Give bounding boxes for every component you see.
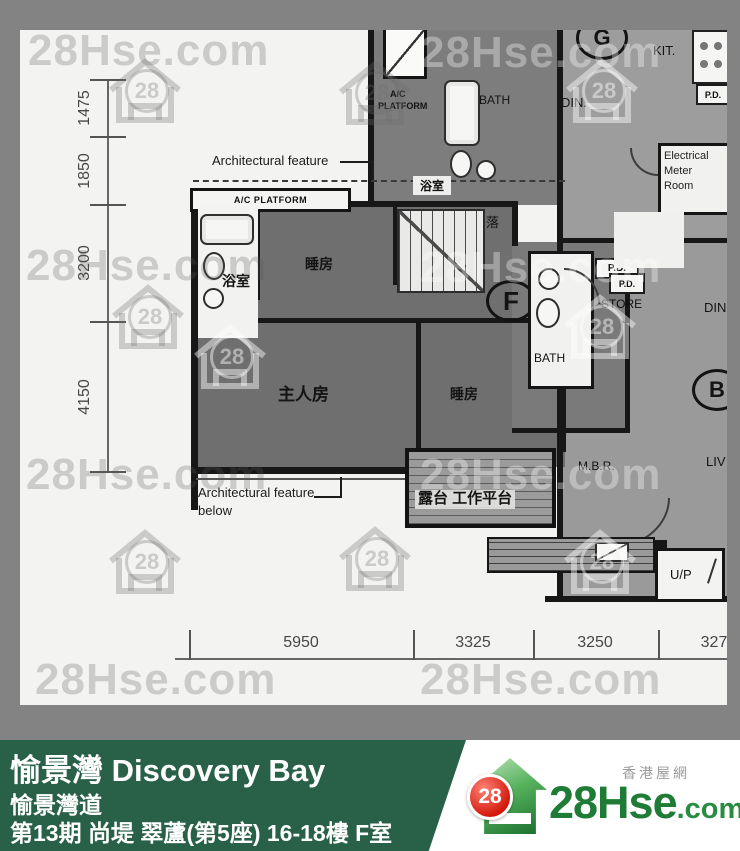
logo-badge: 28	[467, 774, 513, 820]
watermark-badge: 28	[125, 540, 169, 584]
living-label: LIV	[706, 455, 726, 469]
logo-house-icon: 28	[473, 758, 547, 834]
watermark-badge: 28	[355, 537, 399, 581]
watermark-logo-8: 28	[335, 522, 415, 596]
toilet-g	[450, 150, 472, 178]
watermark-logo-3: 28	[562, 54, 642, 128]
wall-store-wing-bottom	[512, 428, 630, 433]
arch-below-connector-v	[340, 477, 342, 498]
dim-tick-v3	[90, 204, 126, 206]
arch-below-connector-h	[314, 496, 342, 498]
watermark-logo-4: 28	[108, 280, 188, 354]
watermark-text-7: 28Hse.com	[35, 655, 276, 705]
watermark-logo-7: 28	[105, 525, 185, 599]
watermark-text-5: 28Hse.com	[26, 450, 267, 500]
watermark-text-4: 28Hse.com	[420, 243, 661, 293]
emr-label-3: Room	[664, 180, 693, 192]
emr-label-2: Meter	[664, 165, 692, 177]
watermark-logo-6: 28	[560, 290, 640, 364]
dining-right-label: DIN	[704, 301, 726, 315]
logo-name: 28Hse	[549, 780, 677, 825]
dim-label-327: 327	[692, 634, 727, 652]
watermark-badge: 28	[580, 540, 624, 584]
arch-feature-dashed-line	[193, 180, 565, 182]
arch-feature-connector-v	[372, 161, 374, 180]
dim-tick-h2	[413, 630, 415, 660]
pd-upper-label: P.D.	[705, 90, 721, 100]
up-label: U/P	[670, 568, 692, 582]
bath-g-cn-chip: 浴室	[413, 176, 451, 195]
watermark-logo-1: 28	[105, 54, 185, 128]
watermark-logo-9: 28	[560, 525, 640, 599]
watermark-logo-5: 28	[190, 320, 270, 394]
watermark-badge: 28	[210, 335, 254, 379]
bath-g-cn-label: 浴室	[420, 177, 444, 194]
wall-master-bedroom2	[416, 320, 421, 467]
toilet-mid	[536, 298, 560, 328]
sink-f	[203, 288, 224, 309]
dim-label-1475: 1475	[76, 86, 92, 130]
watermark-text-6: 28Hse.com	[420, 450, 661, 500]
bathtub-g	[444, 80, 480, 146]
dim-label-4150: 4150	[76, 375, 92, 419]
dim-label-5950: 5950	[279, 634, 323, 652]
screenshot-stage: Architectural feature A/C PLATFORM 浴室 睡房…	[0, 0, 740, 851]
banner-title: 愉景灣 Discovery Bay	[10, 745, 325, 790]
unit-b-letter: B	[709, 377, 725, 403]
sink-g	[476, 160, 496, 180]
wall-f-right-upper	[512, 201, 518, 246]
dim-label-3325: 3325	[451, 634, 495, 652]
master-bedroom-label: 主人房	[278, 386, 329, 405]
bedroom-lower-label: 睡房	[450, 387, 478, 402]
watermark-badge: 28	[125, 69, 169, 113]
arch-feature-label: Architectural feature	[212, 154, 328, 168]
watermark-badge: 28	[580, 305, 624, 349]
watermark-badge: 28	[128, 295, 172, 339]
stove	[692, 30, 727, 84]
watermark-text-8: 28Hse.com	[420, 655, 661, 705]
dim-label-3250: 3250	[573, 634, 617, 652]
arch-feature-connector-h	[340, 161, 374, 163]
logo-wordmark: 28Hse.com	[549, 780, 740, 825]
ac-platform-label: A/C PLATFORM	[234, 195, 307, 205]
watermark-badge: 28	[355, 71, 399, 115]
watermark-logo-2: 28	[335, 56, 415, 130]
banner-detail: 第13期 尚堤 翠蘆(第5座) 16-18樓 F室	[10, 814, 392, 848]
dim-label-1850: 1850	[76, 149, 92, 193]
arch-feature-below-label-2: below	[198, 504, 232, 518]
bath-g-label: BATH	[479, 94, 510, 107]
logo-tld: .com	[677, 795, 740, 824]
watermark-badge: 28	[582, 69, 626, 113]
stairs-down-label: 落	[486, 216, 499, 230]
floorplan-paper: Architectural feature A/C PLATFORM 浴室 睡房…	[20, 30, 727, 705]
bedroom-upper-label: 睡房	[305, 257, 333, 272]
emr-label-1: Electrical	[664, 150, 709, 162]
dim-tick-v2	[90, 136, 126, 138]
pd-upper-chip: P.D.	[696, 84, 727, 105]
